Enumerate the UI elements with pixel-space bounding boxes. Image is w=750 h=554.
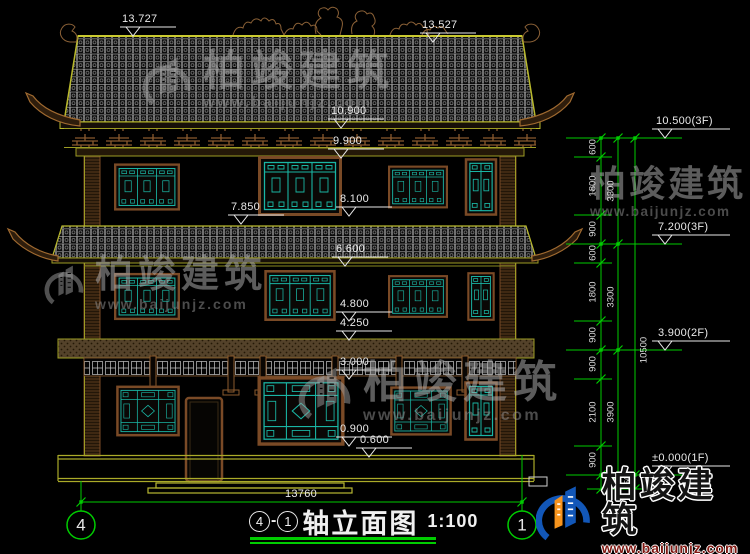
drawing-title: 4 - 1 轴立面图 1:100 [249, 504, 478, 538]
entry-door [186, 398, 222, 481]
elev-label-6600: 6.600 [336, 244, 365, 255]
axis-bubble-1-label: 1 [517, 517, 526, 534]
elev-label-9900: 9.900 [333, 136, 362, 147]
title-underline-2 [250, 542, 436, 544]
dim-3300-b: 3300 [606, 286, 616, 307]
dim-3300-a: 3300 [606, 180, 616, 201]
elevation-drawing [0, 0, 750, 554]
second-floor-windows [115, 271, 493, 320]
first-floor-windows [117, 378, 496, 444]
title-axis-start-bubble: 4 [249, 511, 270, 532]
elev-label-7200-3f: 7.200(3F) [658, 222, 708, 233]
elev-label-7850: 7.850 [231, 202, 260, 213]
elev-label-10500-3f: 10.500(3F) [656, 116, 713, 127]
dim-total-10500: 10500 [639, 337, 649, 363]
elev-label-10900: 10.900 [331, 106, 366, 117]
dim-600-b: 600 [588, 245, 598, 261]
elev-label-0000-1f: ±0.000(1F) [652, 453, 709, 464]
elev-label-3000: 3.000 [340, 357, 369, 368]
building [8, 7, 582, 493]
dougong-band [64, 129, 536, 157]
elev-label-8100: 8.100 [340, 194, 369, 205]
title-dash: - [271, 512, 276, 530]
axis-bubble-4-label: 4 [76, 517, 85, 534]
dimension-chain-right [566, 134, 682, 494]
floor-band [58, 339, 534, 358]
title-underline-1 [250, 537, 436, 540]
elev-label-13727: 13.727 [122, 14, 157, 25]
dim-900-c: 900 [588, 356, 598, 372]
dim-900-d: 900 [588, 452, 598, 468]
cad-elevation-screenshot: 柏竣建筑 www.baijunjz.com 柏竣建筑 www.baijunjz.… [0, 0, 750, 554]
dim-bottom-13760: 13760 [285, 489, 317, 500]
dim-below-grade-450: 450 [624, 475, 632, 488]
dim-1800-a: 1800 [588, 175, 598, 196]
dim-3900: 3900 [606, 401, 616, 422]
dim-900-b: 900 [588, 327, 598, 343]
title-name: 轴立面图 [302, 502, 418, 541]
dim-600-a: 600 [588, 139, 598, 155]
elevation-markers-right [652, 129, 730, 475]
third-floor-windows [115, 158, 496, 215]
elev-label-4800: 4.800 [340, 299, 369, 310]
dim-900-a: 900 [588, 221, 598, 237]
main-roof [60, 36, 540, 129]
dim-2100: 2100 [588, 401, 598, 422]
elev-label-13527: 13.527 [422, 20, 457, 31]
title-axis-end-bubble: 1 [277, 511, 298, 532]
elev-label-4250: 4.250 [340, 318, 369, 329]
title-scale: 1:100 [427, 511, 478, 532]
elev-label-0600: 0.600 [360, 435, 389, 446]
dim-1800-b: 1800 [588, 281, 598, 302]
second-roof [52, 226, 538, 266]
elev-label-3900-2f: 3.900(2F) [658, 328, 708, 339]
